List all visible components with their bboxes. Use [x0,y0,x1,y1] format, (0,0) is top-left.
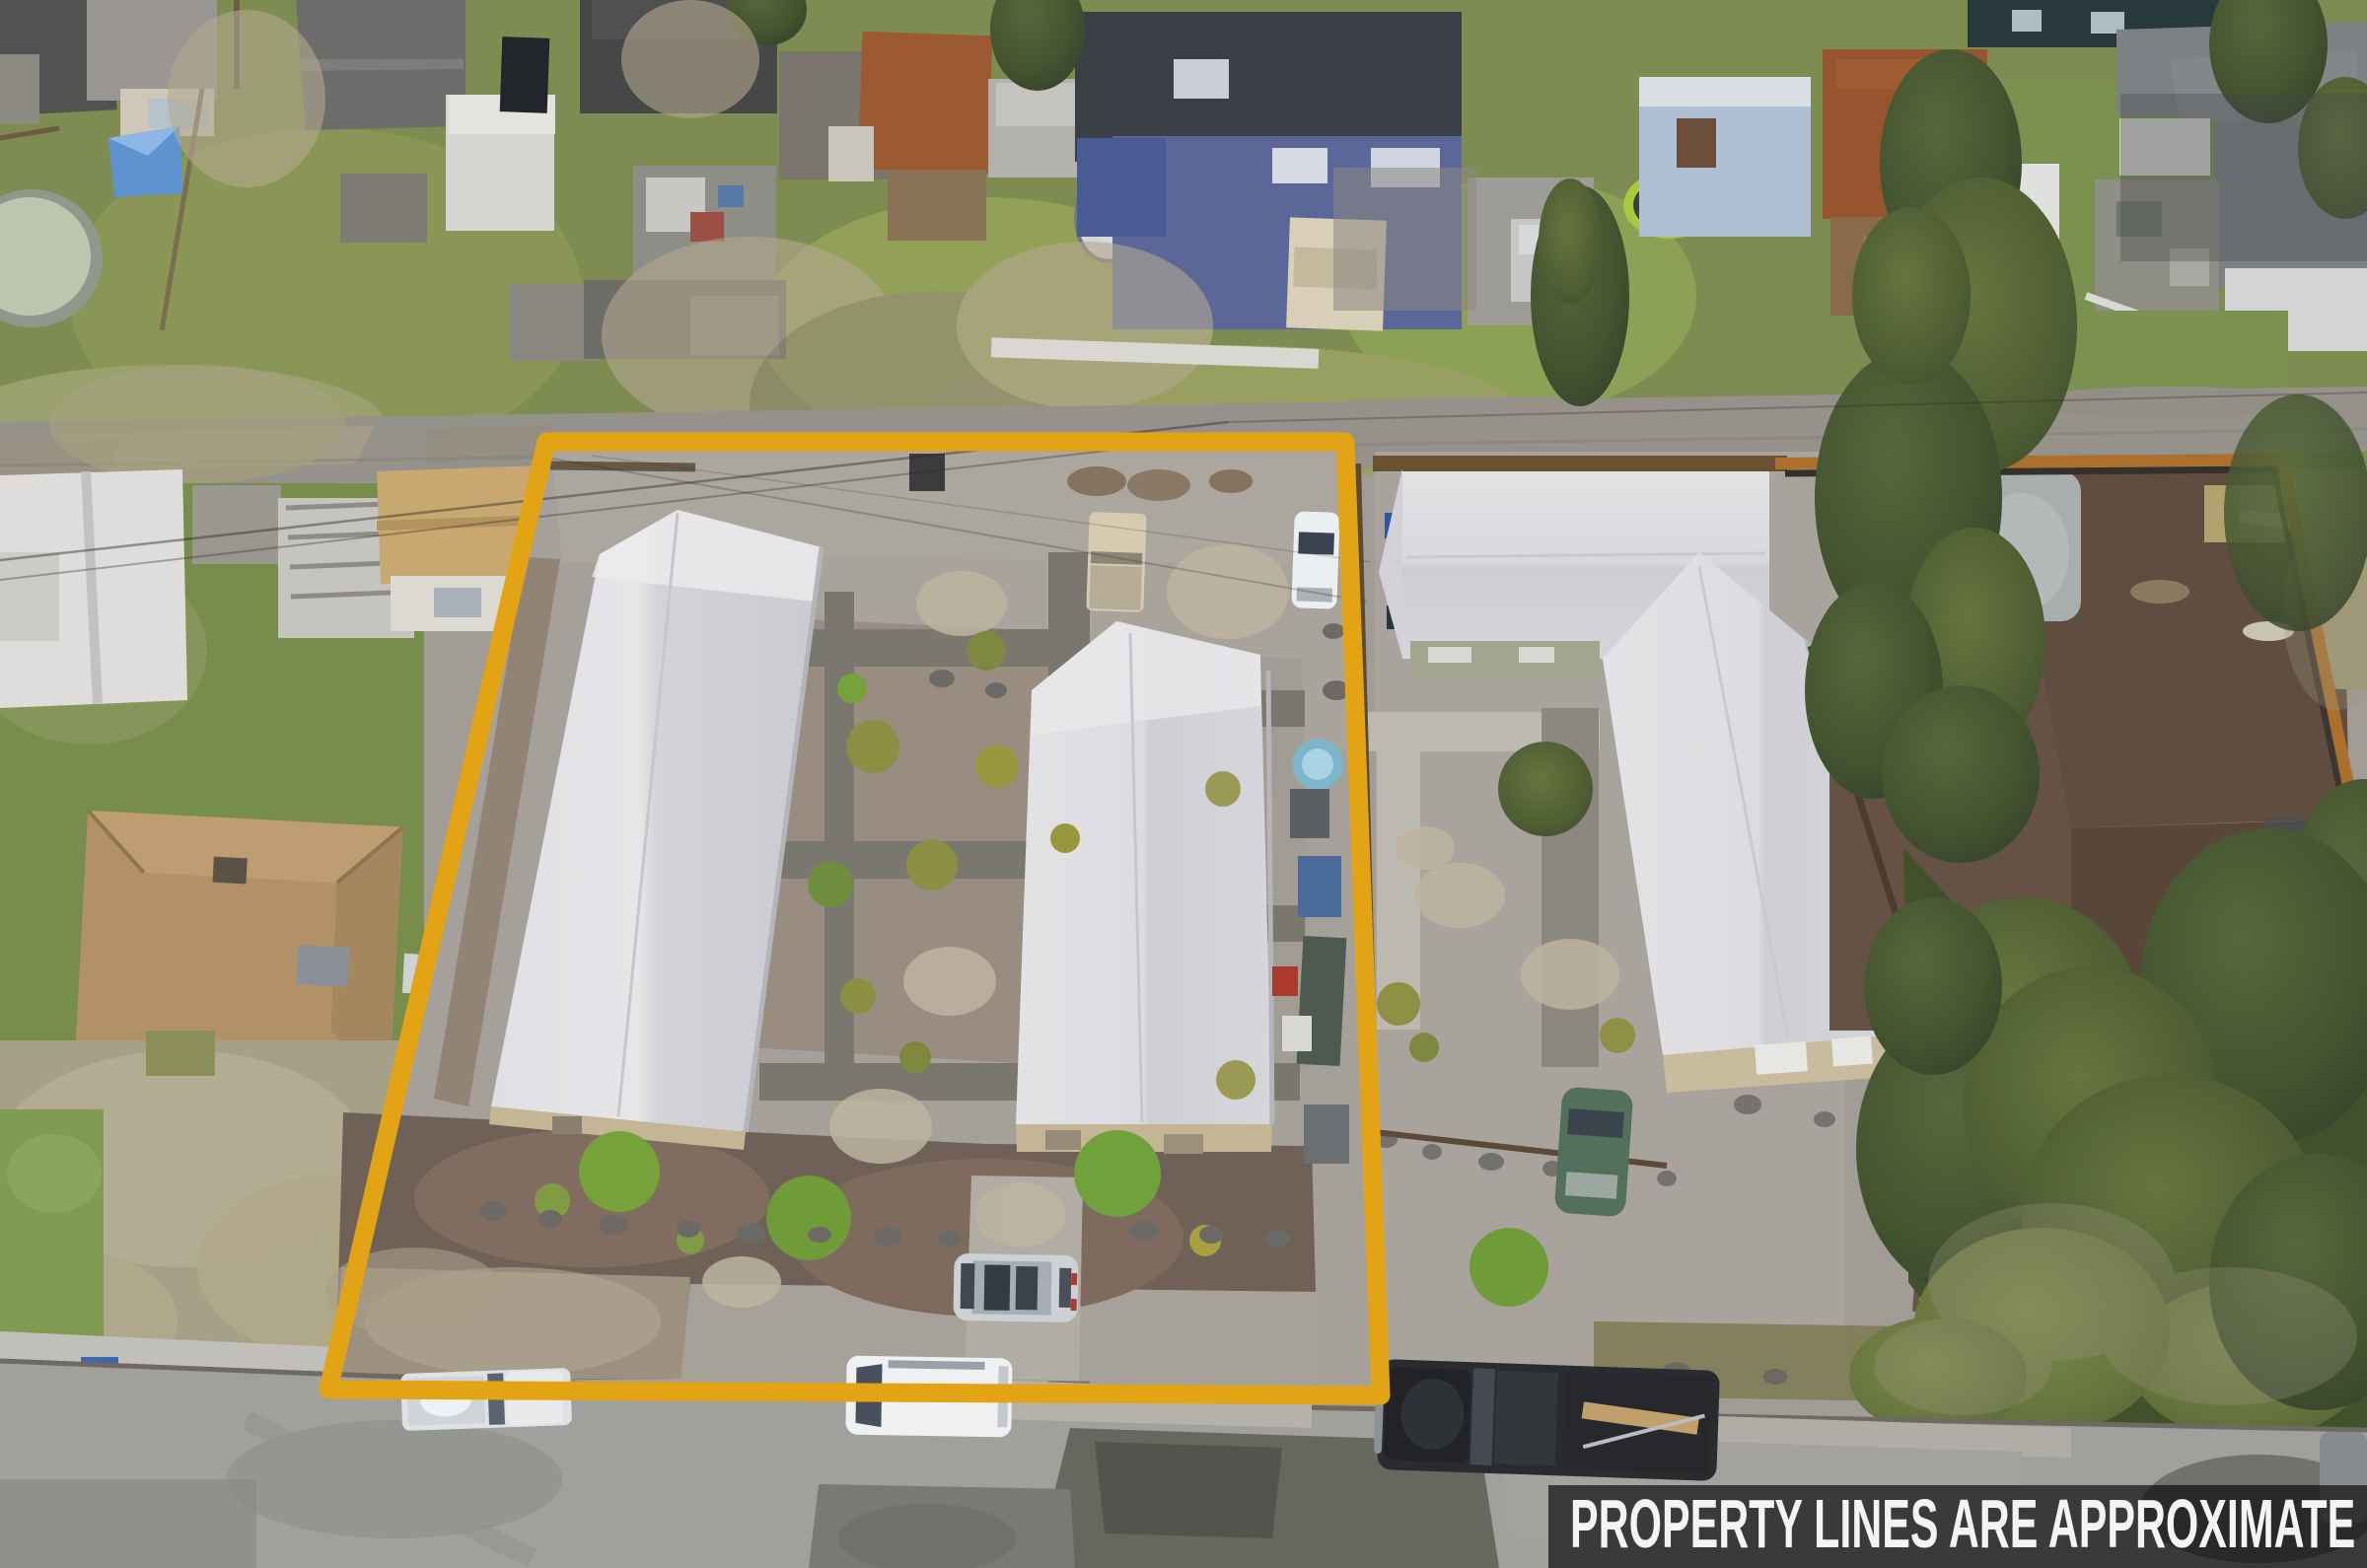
svg-text:PROPERTY LINES ARE APPROXIMATE: PROPERTY LINES ARE APPROXIMATE [1570,1485,2355,1562]
